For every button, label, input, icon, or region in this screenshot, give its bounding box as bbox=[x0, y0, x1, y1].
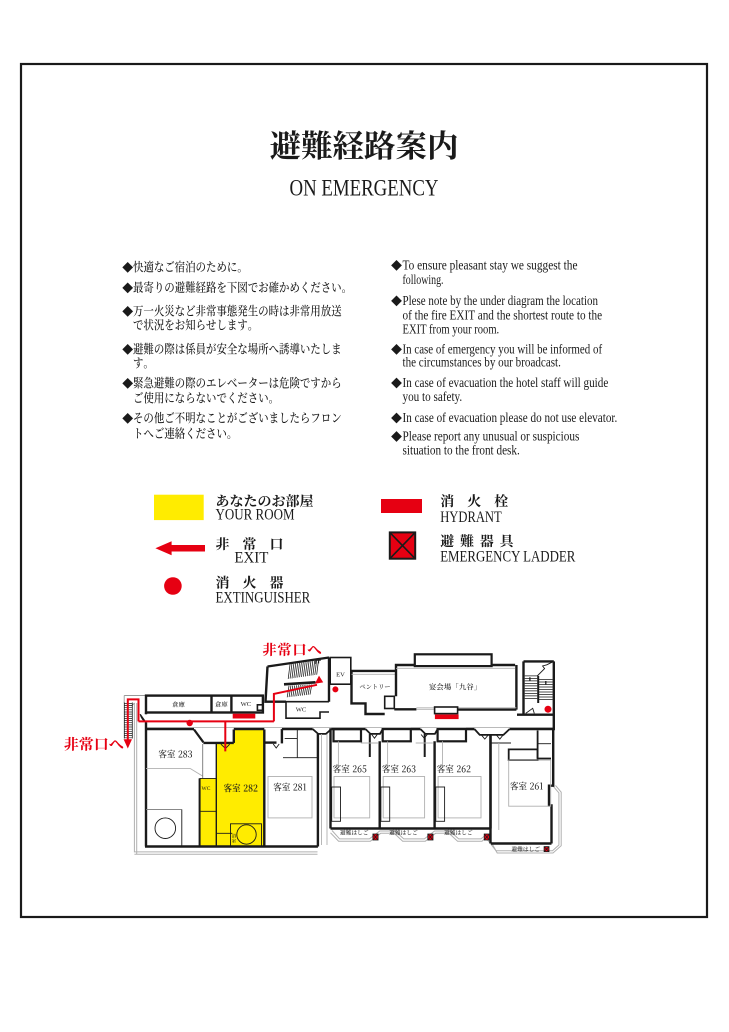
svg-text:EMERGENCY LADDER: EMERGENCY LADDER bbox=[440, 549, 576, 566]
svg-text:HYDRANT: HYDRANT bbox=[440, 509, 502, 526]
svg-text:of the fire EXIT and the short: of the fire EXIT and the shortest route … bbox=[403, 307, 603, 322]
svg-text:the circumstances by our broad: the circumstances by our broadcast. bbox=[403, 355, 561, 370]
svg-text:WC: WC bbox=[296, 707, 307, 714]
svg-text:ON EMERGENCY: ON EMERGENCY bbox=[290, 176, 439, 202]
svg-text:WC: WC bbox=[202, 786, 211, 792]
svg-text:To ensure pleasant stay we sug: To ensure pleasant stay we suggest the bbox=[403, 258, 578, 273]
svg-text:Plese note by the under diagra: Plese note by the under diagram the loca… bbox=[403, 293, 599, 308]
svg-text:EXTINGUISHER: EXTINGUISHER bbox=[216, 590, 311, 607]
svg-text:EXIT: EXIT bbox=[234, 550, 269, 567]
svg-text:Please report any unusual or s: Please report any unusual or suspicious bbox=[403, 429, 580, 444]
svg-text:In case of evacuation please d: In case of evacuation please do not use … bbox=[403, 410, 618, 425]
svg-text:you to safety.: you to safety. bbox=[403, 389, 463, 404]
svg-text:WC: WC bbox=[241, 701, 252, 708]
svg-text:EXIT from your room.: EXIT from your room. bbox=[403, 321, 500, 336]
svg-text:following.: following. bbox=[403, 272, 444, 287]
svg-text:EV: EV bbox=[336, 672, 345, 679]
svg-text:situation to the front desk.: situation to the front desk. bbox=[403, 443, 520, 458]
svg-text:YOUR ROOM: YOUR ROOM bbox=[216, 507, 295, 524]
